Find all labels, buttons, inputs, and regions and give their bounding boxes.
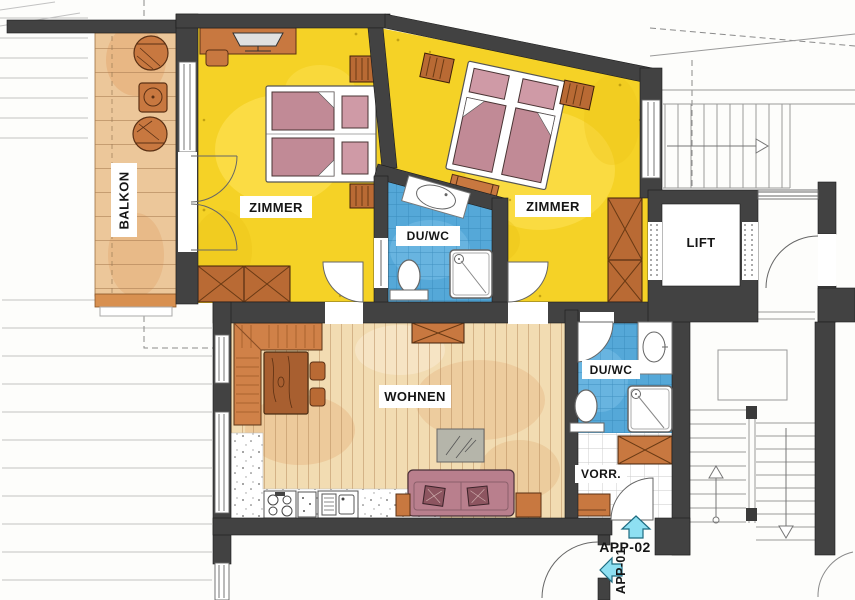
chair [310, 388, 325, 406]
chair [310, 362, 325, 380]
wardrobe [608, 198, 642, 302]
balcony-chair [134, 36, 168, 70]
room-label-balkon: BALKON [111, 163, 137, 237]
room-label-duwc-top: DU/WC [396, 226, 460, 246]
floor-plan: BALKON ZIMMER ZIMMER DU/WC DU/WC LIFT WO… [0, 0, 855, 600]
side-table [516, 493, 541, 517]
toilet [398, 260, 420, 292]
stair-room-door [766, 236, 818, 288]
terrace-steps-left [2, 300, 212, 580]
coffee-table [437, 429, 484, 462]
shower [628, 386, 672, 432]
toilet-cistern [390, 290, 428, 300]
toilet-cistern [570, 423, 604, 432]
tv-icon [233, 33, 283, 46]
washbasin [638, 322, 672, 374]
wardrobe [198, 266, 290, 302]
room-label-zimmer-right: ZIMMER [515, 195, 591, 217]
room-label-duwc-side: DU/WC [582, 360, 640, 379]
room-label-vorr: VORR. [575, 465, 627, 483]
room-label-wohnen: WOHNEN [379, 385, 451, 408]
kitchen-stove [264, 491, 296, 518]
dining-table [264, 352, 308, 414]
entrance-label-app01: APP-01 [610, 542, 632, 600]
room-label-lift: LIFT [672, 232, 730, 252]
wardrobe [618, 436, 672, 464]
dresser [412, 323, 464, 343]
kitchen-cabinet [298, 492, 316, 517]
kitchen-sink [318, 491, 358, 518]
double-bed [446, 61, 569, 190]
stool [206, 50, 228, 66]
side-table [396, 494, 410, 516]
staircase-upper-right [650, 90, 855, 188]
shower [450, 250, 492, 298]
toilet [575, 390, 597, 422]
floor-plan-drawing [0, 0, 855, 600]
room-label-zimmer-left: ZIMMER [240, 196, 312, 218]
sofa [408, 470, 514, 516]
nightstand [350, 184, 376, 208]
